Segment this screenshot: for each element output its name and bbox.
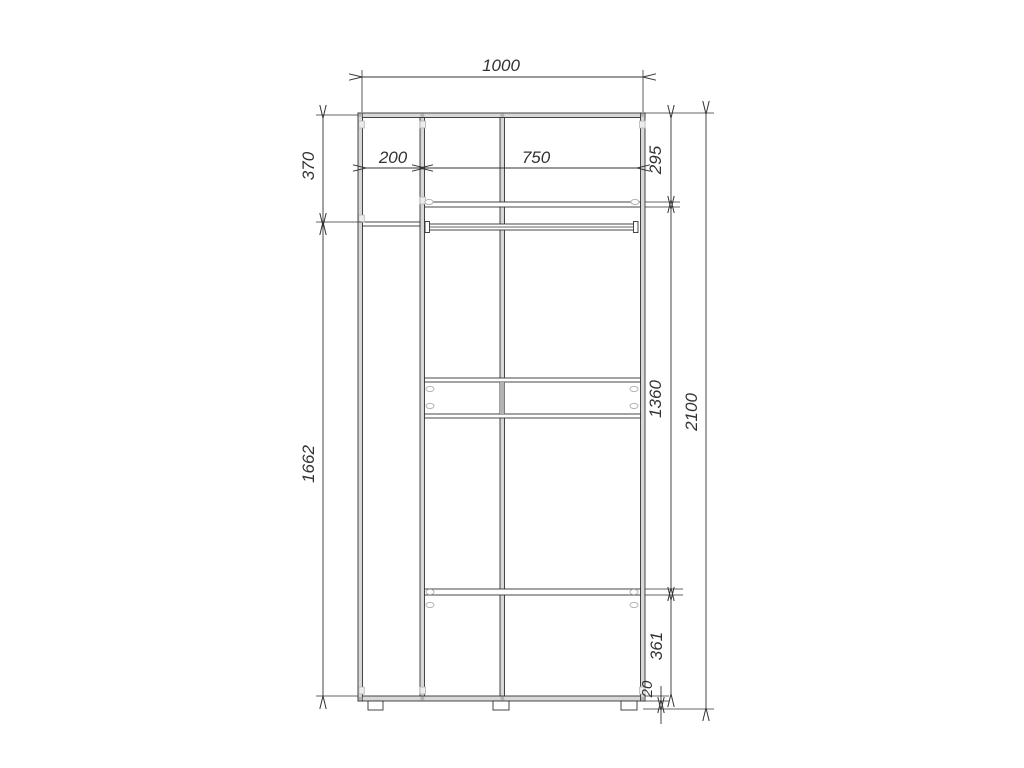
- bottom-shelf: [425, 589, 641, 595]
- right-side-panel: [641, 113, 646, 701]
- foot-left: [368, 701, 383, 710]
- dim-label-total-height: 2100: [682, 393, 701, 432]
- dim-label-lower-right-height: 361: [647, 632, 666, 660]
- center-stile-cut-segment: [500, 382, 505, 414]
- dim-label-right-section-width: 750: [522, 148, 551, 167]
- foot-right: [621, 701, 637, 710]
- top-shelf: [425, 202, 641, 207]
- rod-bracket-right: [634, 222, 639, 233]
- dim-label-left-section-width: 200: [378, 148, 408, 167]
- dim-label-middle-right-height: 1360: [646, 380, 665, 418]
- left-shelf: [363, 222, 421, 226]
- dim-label-upper-left-height: 370: [299, 151, 318, 180]
- dim-label-lower-left-height: 1662: [299, 445, 318, 483]
- middle-shelf-lower: [425, 414, 641, 418]
- foot-center: [493, 701, 509, 710]
- hanging-rod: [425, 222, 638, 233]
- middle-shelf-upper: [425, 378, 641, 382]
- left-side-panel: [358, 113, 363, 701]
- cabinet-structure: [358, 113, 645, 710]
- technical-drawing: 1000 200 750 370 1662 295 1360 361 20 21…: [0, 0, 1024, 768]
- dim-label-total-width: 1000: [482, 56, 520, 75]
- dim-label-upper-right-height: 295: [646, 145, 665, 175]
- rod-bracket-left: [425, 222, 430, 233]
- dim-label-plinth-height: 20: [639, 680, 656, 698]
- feet: [368, 701, 637, 710]
